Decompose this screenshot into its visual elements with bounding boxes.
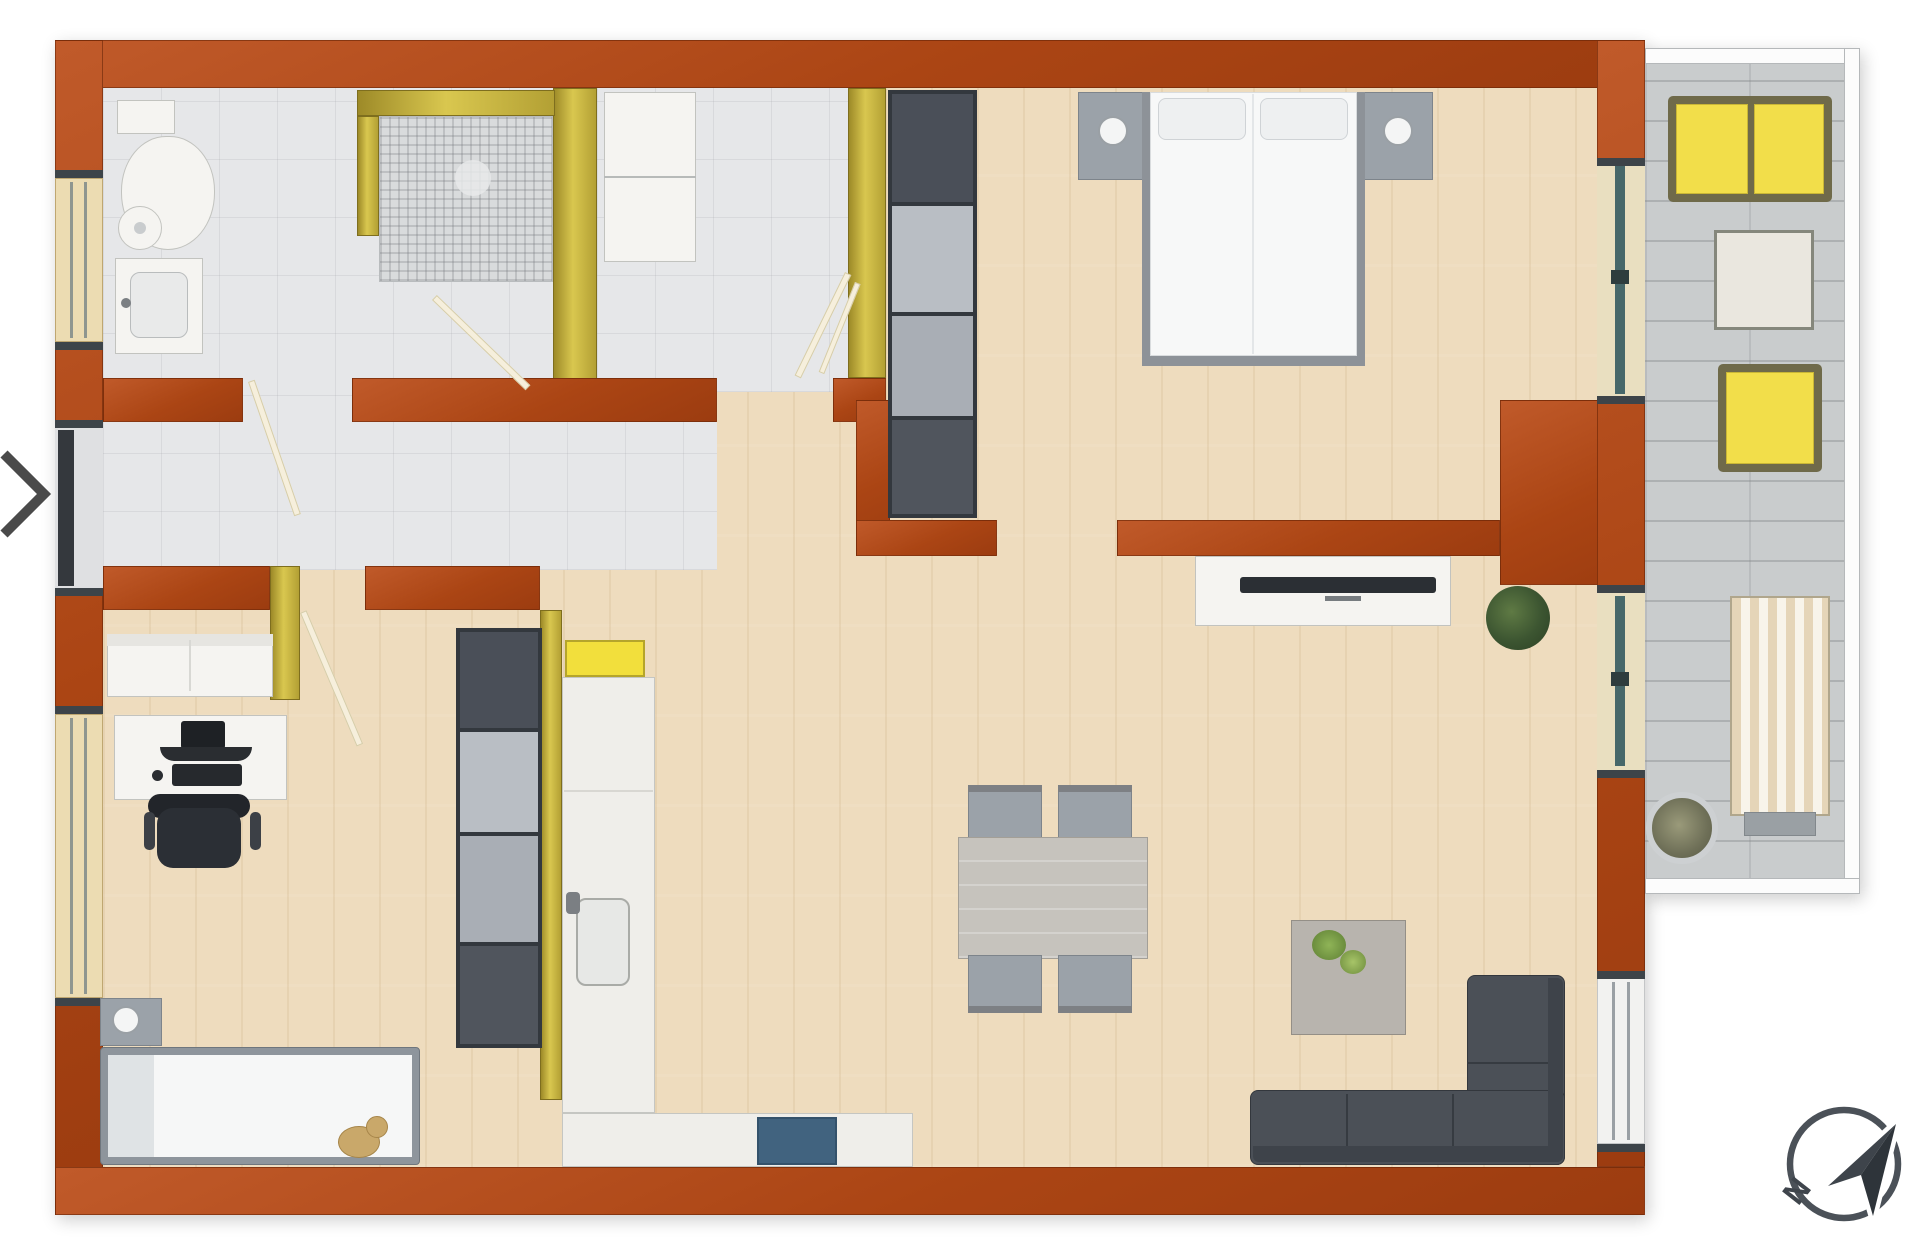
- dining-chair-top-left: [968, 785, 1042, 841]
- monitor: [181, 721, 225, 749]
- living-slider-handle: [1611, 672, 1629, 686]
- wardrobe-door-divider: [604, 176, 696, 178]
- office-window-cap-bottom: [55, 998, 103, 1006]
- toilet-tank: [117, 100, 175, 134]
- bathroom-window: [55, 178, 103, 342]
- shower-drain: [455, 160, 491, 196]
- wall-bathroom-bottom-mid: [352, 378, 717, 422]
- dining-table: [958, 837, 1148, 959]
- shelf1-section-1: [892, 94, 973, 202]
- compass-rose: N: [1778, 1098, 1910, 1230]
- sun-lounger: [1730, 596, 1830, 816]
- bathroom-window-mullion-1: [70, 182, 73, 338]
- bed-rail-right: [1357, 92, 1365, 364]
- balcony-potted-plant: [1646, 792, 1718, 864]
- chair-back-4: [1058, 1006, 1132, 1013]
- lamp-left: [1098, 116, 1128, 146]
- wall-niche-bottom: [856, 520, 997, 556]
- office-chair-seat: [157, 808, 241, 868]
- shelf2-section-2: [460, 732, 538, 832]
- pillow-right: [1260, 98, 1348, 140]
- shelf2-section-4: [460, 946, 538, 1044]
- kitchen-counter-bottom: [562, 1113, 913, 1167]
- entry-cap-top: [55, 420, 103, 428]
- office-window-cap-top: [55, 706, 103, 714]
- floor-plant: [1486, 586, 1550, 650]
- gold-wall-corridor-niche: [848, 88, 886, 378]
- gold-wall-office: [270, 566, 300, 700]
- bed-duvet-fold: [1252, 94, 1254, 354]
- dining-chair-bottom-left: [968, 955, 1042, 1013]
- next-image-button[interactable]: [0, 448, 52, 540]
- wall-office-top-right: [365, 566, 540, 610]
- bathroom-window-cap-bottom: [55, 342, 103, 350]
- sofa-cushion-line-2: [1452, 1094, 1454, 1146]
- wall-outer-top: [55, 40, 1645, 88]
- tv-stand: [1325, 596, 1361, 601]
- chair-back-3: [968, 1006, 1042, 1013]
- monitor-arc: [160, 747, 252, 761]
- sofa-cushion-line-1: [1346, 1094, 1348, 1146]
- entry-cap-bottom: [55, 588, 103, 596]
- balcony-railing-top: [1645, 48, 1860, 64]
- shelf1-section-2: [892, 206, 973, 312]
- kitchen-counter-divider-1: [564, 790, 653, 792]
- yellow-armchair-cushion: [1726, 372, 1814, 464]
- bedroom-slider-handle: [1611, 270, 1629, 284]
- shower-gold-band-left: [357, 116, 379, 236]
- living-window: [1597, 978, 1645, 1144]
- sofa-back-right: [1548, 978, 1563, 1162]
- shelf2-section-3: [460, 836, 538, 942]
- dining-chair-top-right: [1058, 785, 1132, 841]
- chevron-right-icon: [4, 454, 44, 534]
- loveseat-cushion-divider: [189, 640, 191, 691]
- shelf2-section-1: [460, 632, 538, 728]
- sofa-cushion-line-3: [1467, 1062, 1548, 1064]
- wall-office-top-left: [103, 566, 270, 610]
- shelf1-section-3: [892, 316, 973, 416]
- living-window-cap-top: [1597, 971, 1645, 979]
- office-window: [55, 714, 103, 998]
- teddy-bear-head: [366, 1116, 388, 1138]
- bedroom-slider-cap-top: [1597, 158, 1645, 166]
- balcony-railing-right: [1844, 48, 1860, 894]
- chair-back-2: [1058, 785, 1132, 792]
- living-slider-cap-top: [1597, 585, 1645, 593]
- bed-rail-left: [1142, 92, 1150, 364]
- office-chair-arm-right: [250, 812, 261, 850]
- keyboard: [172, 764, 242, 786]
- balcony-side-table: [1714, 230, 1814, 330]
- gold-wall-kitchen: [540, 610, 562, 1100]
- yellow-sofa-cushion-right: [1754, 104, 1824, 194]
- vanity-sink: [130, 272, 188, 338]
- kitchen-blue-appliance: [757, 1117, 837, 1165]
- living-slider-cap-bottom: [1597, 770, 1645, 778]
- kitchen-cooktop-panel: [565, 640, 645, 677]
- office-window-mullion-1: [70, 718, 73, 994]
- sun-lounger-foot-pad: [1744, 812, 1816, 836]
- living-window-mullion-2: [1627, 982, 1630, 1140]
- kids-bed-pillow: [108, 1055, 154, 1157]
- shower-gold-band-top: [357, 90, 555, 116]
- tv-soundbar: [1240, 577, 1436, 593]
- pillow-left: [1158, 98, 1246, 140]
- kitchen-sink: [576, 898, 630, 986]
- gold-wall-bathroom-corridor: [553, 88, 597, 392]
- shelf1-section-4: [892, 420, 973, 514]
- yellow-sofa-cushion-left: [1676, 104, 1748, 194]
- balcony-railing-bottom: [1645, 878, 1860, 894]
- wall-bedroom-divider: [1117, 520, 1500, 556]
- bathroom-window-mullion-2: [84, 182, 87, 338]
- office-chair-arm-left: [144, 812, 155, 850]
- coffee-table: [1291, 920, 1406, 1035]
- kids-lamp: [112, 1006, 140, 1034]
- flower-bouquet-2: [1340, 950, 1366, 974]
- chair-back-1: [968, 785, 1042, 792]
- mouse: [152, 770, 163, 781]
- bedroom-slider-cap-bottom: [1597, 396, 1645, 404]
- shower-mosaic-floor: [379, 116, 553, 282]
- living-window-mullion-1: [1612, 982, 1615, 1140]
- floorplan-stage: N: [0, 0, 1920, 1251]
- lamp-right: [1383, 116, 1413, 146]
- bidet-drain: [134, 222, 146, 234]
- wall-outer-bottom: [55, 1167, 1645, 1215]
- bathroom-window-cap-top: [55, 170, 103, 178]
- sofa-back-bottom: [1253, 1146, 1563, 1162]
- entry-door-leaf: [58, 430, 74, 586]
- vanity-faucet: [121, 298, 131, 308]
- kitchen-faucet: [566, 892, 580, 914]
- bed-rail-foot: [1142, 356, 1365, 366]
- living-window-cap-bottom: [1597, 1144, 1645, 1152]
- office-window-mullion-2: [84, 718, 87, 994]
- dining-chair-bottom-right: [1058, 955, 1132, 1013]
- wall-bathroom-bottom-left: [103, 378, 243, 422]
